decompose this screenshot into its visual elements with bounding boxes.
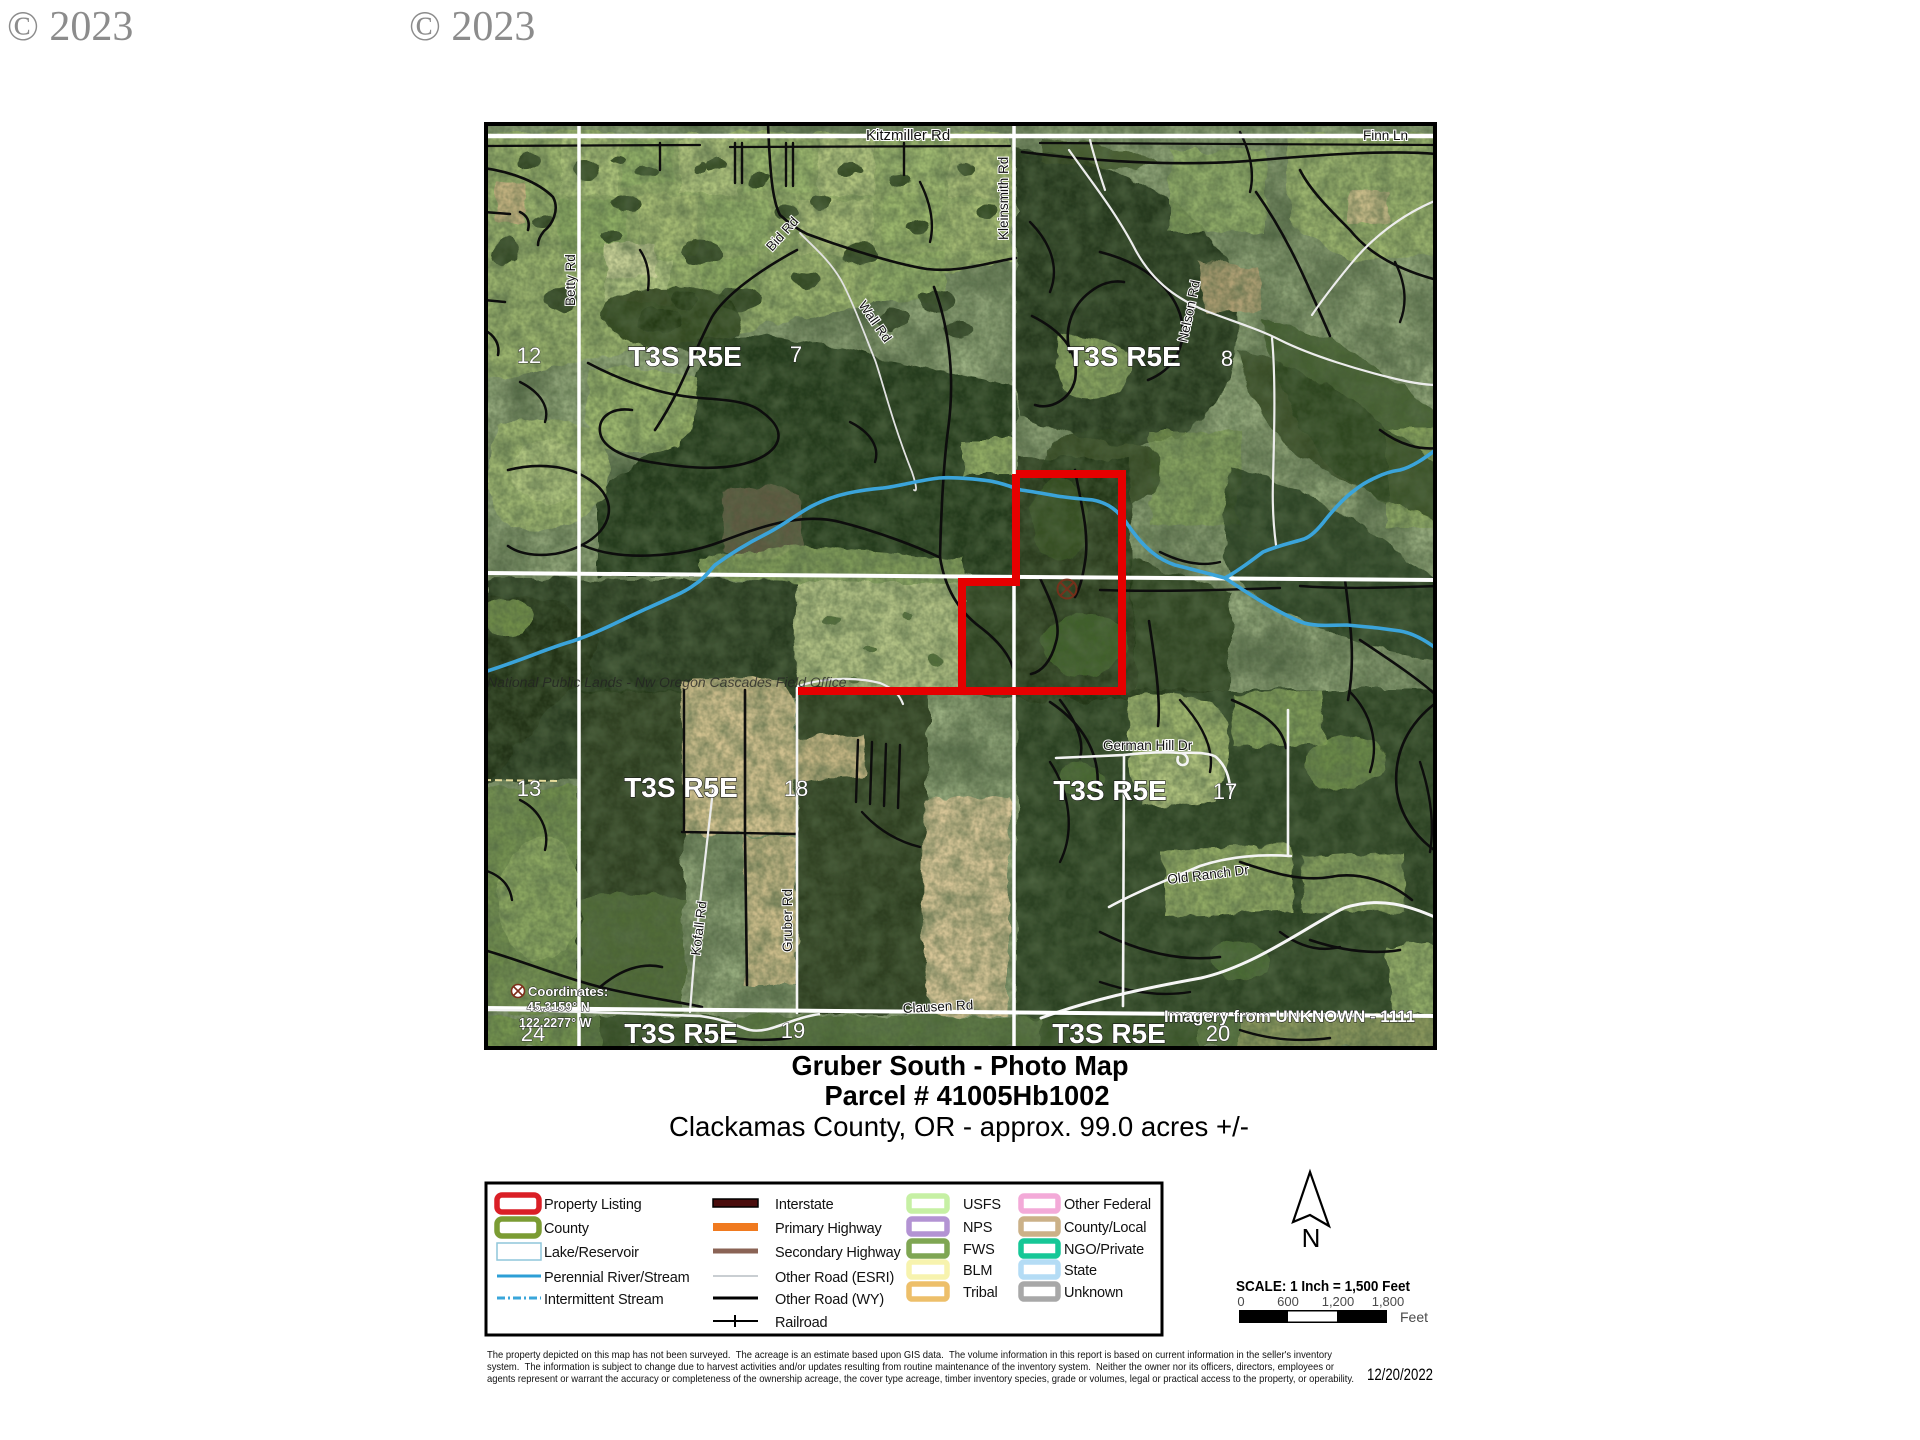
svg-text:BLM: BLM (963, 1263, 992, 1279)
svg-text:T3S R5E: T3S R5E (624, 772, 738, 803)
svg-text:Primary Highway: Primary Highway (775, 1221, 883, 1237)
svg-text:National Public Lands - Nw Ore: National Public Lands - Nw Oregon Cascad… (487, 674, 847, 690)
svg-text:Railroad: Railroad (775, 1315, 828, 1331)
svg-text:SCALE: 1 Inch = 1,500 Feet: SCALE: 1 Inch = 1,500 Feet (1236, 1278, 1410, 1295)
svg-text:Feet: Feet (1400, 1309, 1428, 1325)
svg-text:County: County (544, 1221, 590, 1237)
svg-text:12/20/2022: 12/20/2022 (1367, 1365, 1433, 1384)
svg-text:17: 17 (1213, 779, 1237, 804)
svg-text:Intermittent Stream: Intermittent Stream (544, 1292, 664, 1308)
svg-text:Other Road (ESRI): Other Road (ESRI) (775, 1270, 894, 1286)
svg-text:Betty Rd: Betty Rd (563, 254, 578, 306)
svg-text:Gruber Rd: Gruber Rd (780, 889, 795, 952)
svg-text:State: State (1064, 1263, 1097, 1279)
svg-text:Tribal: Tribal (963, 1285, 998, 1301)
svg-text:0: 0 (1237, 1294, 1244, 1309)
svg-text:USFS: USFS (963, 1197, 1001, 1213)
svg-text:Parcel # 41005Hb1002: Parcel # 41005Hb1002 (825, 1080, 1110, 1111)
svg-text:Interstate: Interstate (775, 1197, 834, 1213)
svg-text:Clackamas County, OR - approx.: Clackamas County, OR - approx. 99.0 acre… (669, 1111, 1249, 1142)
svg-text:1,800: 1,800 (1372, 1294, 1405, 1309)
svg-text:Property Listing: Property Listing (544, 1197, 642, 1213)
svg-text:County/Local: County/Local (1064, 1220, 1146, 1236)
svg-text:7: 7 (790, 342, 802, 367)
svg-text:T3S R5E: T3S R5E (1053, 775, 1167, 806)
svg-text:T3S R5E: T3S R5E (1067, 341, 1181, 372)
svg-text:19: 19 (781, 1018, 805, 1043)
svg-text:8: 8 (1221, 346, 1233, 371)
svg-text:© 2023: © 2023 (409, 4, 535, 50)
svg-text:T3S R5E: T3S R5E (624, 1018, 738, 1049)
svg-text:The property depicted on this: The property depicted on this map has no… (487, 1349, 1333, 1361)
svg-text:NGO/Private: NGO/Private (1064, 1242, 1144, 1258)
svg-text:45.3159° N: 45.3159° N (527, 1000, 590, 1014)
svg-text:FWS: FWS (963, 1242, 995, 1258)
svg-text:agents represent or warrant th: agents represent or warrant the accuracy… (487, 1373, 1354, 1385)
svg-text:Other Federal: Other Federal (1064, 1197, 1151, 1213)
svg-text:Kitzmiller Rd: Kitzmiller Rd (866, 127, 950, 144)
svg-text:Kleinsmith Rd: Kleinsmith Rd (996, 157, 1011, 240)
svg-text:18: 18 (784, 776, 808, 801)
svg-text:Other Road (WY): Other Road (WY) (775, 1292, 884, 1308)
svg-text:© 2023: © 2023 (7, 4, 133, 50)
svg-text:T3S R5E: T3S R5E (1052, 1018, 1166, 1049)
svg-text:system. The information is su: system. The information is subject to ch… (487, 1361, 1334, 1373)
svg-text:12: 12 (517, 343, 541, 368)
svg-text:German Hill Dr: German Hill Dr (1103, 738, 1193, 753)
svg-text:Lake/Reservoir: Lake/Reservoir (544, 1245, 639, 1261)
svg-text:T3S R5E: T3S R5E (628, 341, 742, 372)
svg-text:Secondary Highway: Secondary Highway (775, 1245, 902, 1261)
svg-text:Finn Ln: Finn Ln (1363, 128, 1408, 143)
svg-text:Coordinates:: Coordinates: (528, 984, 608, 999)
svg-text:13: 13 (517, 776, 541, 801)
svg-text:600: 600 (1277, 1294, 1299, 1309)
svg-text:Imagery from UNKNOWN - 1111: Imagery from UNKNOWN - 1111 (1164, 1007, 1415, 1026)
svg-text:Unknown: Unknown (1064, 1285, 1123, 1301)
svg-text:Gruber South - Photo Map: Gruber South - Photo Map (792, 1050, 1129, 1081)
svg-text:N: N (1302, 1223, 1321, 1253)
svg-text:NPS: NPS (963, 1220, 992, 1236)
svg-text:Perennial River/Stream: Perennial River/Stream (544, 1270, 690, 1286)
svg-text:1,200: 1,200 (1322, 1294, 1355, 1309)
svg-text:122.2277° W: 122.2277° W (519, 1016, 592, 1030)
